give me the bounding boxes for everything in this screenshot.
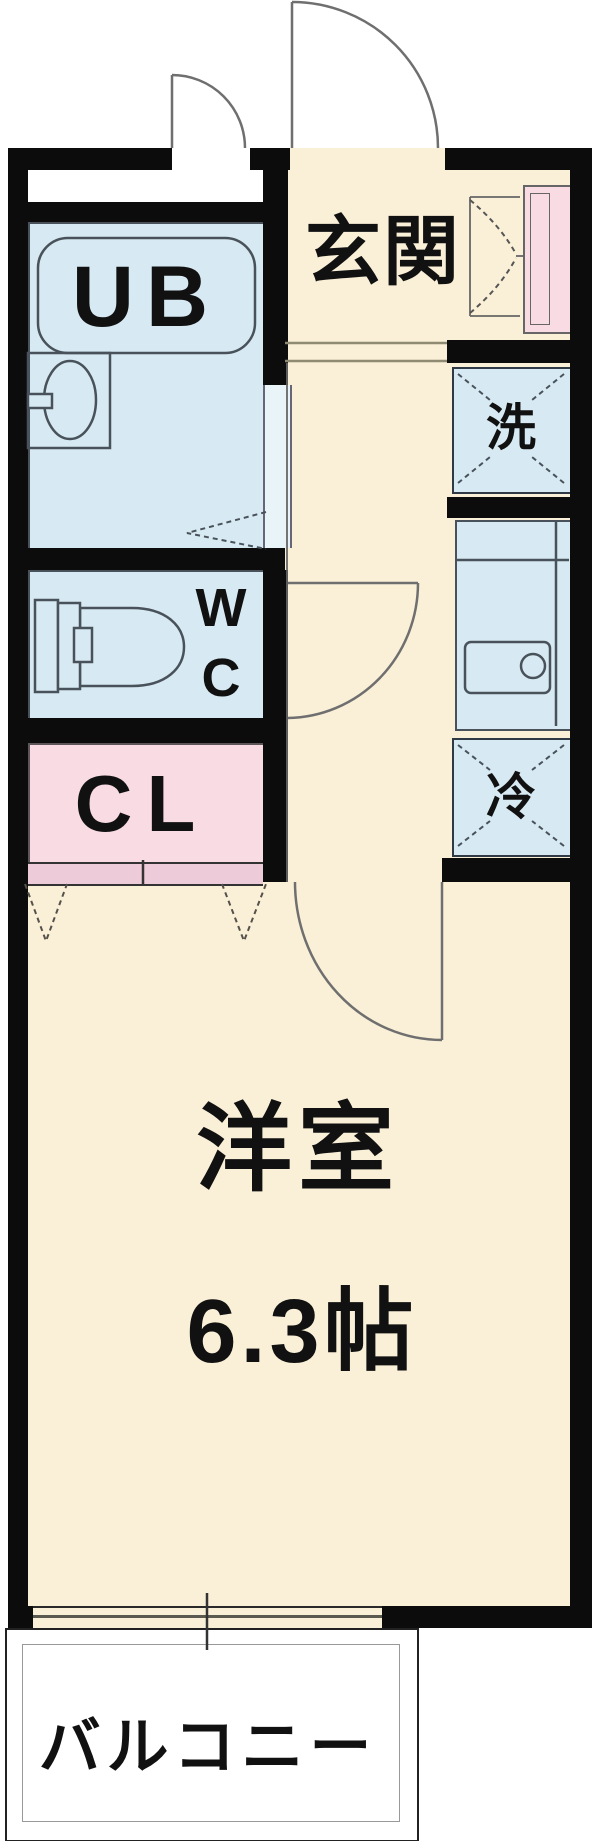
wall-top-1 — [8, 148, 172, 170]
toilet-label-w: W — [196, 581, 247, 635]
closet-sliding-door — [28, 862, 263, 886]
entrance-label: 玄関 — [305, 215, 461, 291]
wall-bottom-right — [382, 1606, 592, 1628]
shoe-cabinet-inner — [530, 193, 550, 325]
closet-label: CL — [75, 764, 210, 844]
alcove-door-swing-icon — [172, 75, 245, 148]
entrance-door-swing-icon — [292, 2, 438, 148]
wall-bath-wc — [8, 548, 285, 570]
kitchen-counter — [455, 520, 574, 731]
wall-cl-right — [263, 743, 288, 882]
wall-entrance-bottom — [447, 340, 570, 363]
room-size-label: 6.3帖 — [186, 1287, 417, 1377]
room-name-label: 洋室 — [196, 1102, 400, 1198]
fridge-label: 冷 — [486, 772, 536, 822]
floor-plan: UB 玄関 洗 W C 冷 CL 洋室 6.3帖 バルコニー — [0, 0, 600, 1841]
wall-room-top-right — [442, 858, 592, 882]
wall-left — [8, 148, 28, 1628]
main-room-area — [28, 858, 570, 1606]
meter-alcove — [28, 170, 263, 202]
hallway-area — [285, 340, 452, 892]
wall-right — [570, 148, 592, 1628]
entrance-floor — [290, 148, 445, 170]
wall-wc-right — [263, 570, 288, 720]
bath-door-opening — [263, 385, 292, 548]
toilet-label-c: C — [202, 651, 241, 705]
unit-bath-label: UB — [72, 254, 220, 340]
room-window-track — [33, 1615, 382, 1618]
wall-washer-kitchen — [447, 497, 570, 518]
wall-bottom-left — [8, 1606, 33, 1628]
washer-label: 洗 — [486, 403, 536, 453]
balcony-label: バルコニー — [39, 1717, 378, 1779]
wall-bath-entrance — [263, 148, 288, 385]
wall-wc-cl — [8, 718, 288, 743]
wall-alcove-bottom — [8, 202, 263, 222]
